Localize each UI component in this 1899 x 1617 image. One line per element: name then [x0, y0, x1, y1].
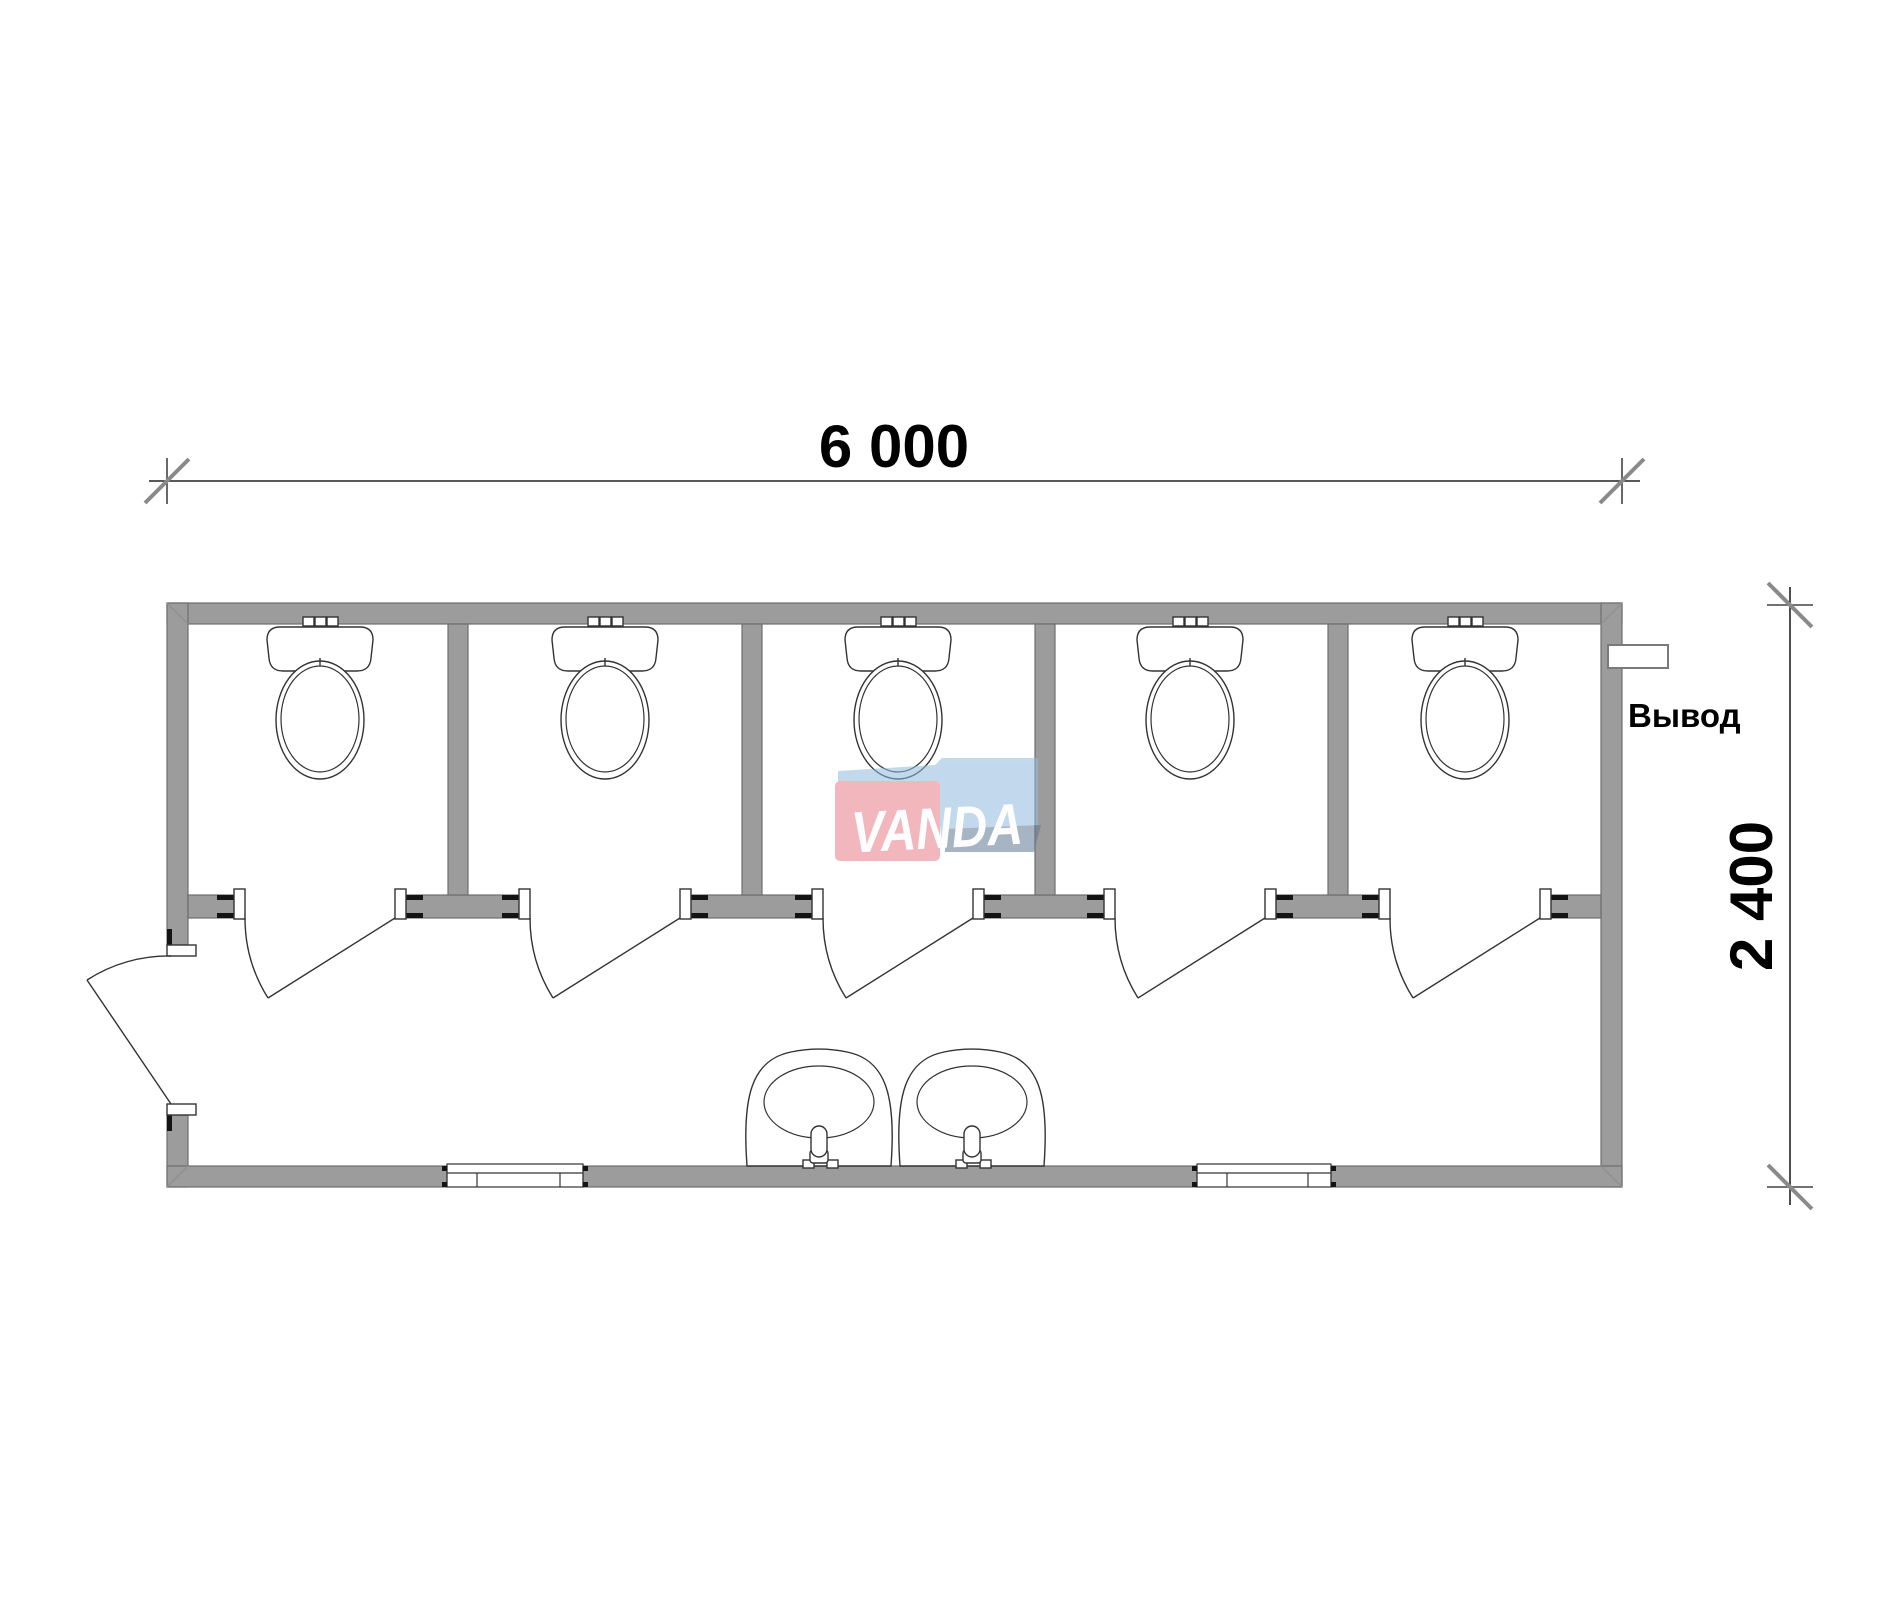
- wall-end-cap: [1192, 1166, 1197, 1171]
- partition-wall: [448, 624, 468, 895]
- toilet-icon: [267, 617, 373, 779]
- sink-icon: [746, 1049, 893, 1168]
- canvas: 6 000 2 400: [0, 0, 1899, 1617]
- watermark-text: VANDA: [850, 792, 1025, 866]
- partition-wall: [1328, 624, 1348, 895]
- toilet-icon: [552, 617, 658, 779]
- wall-end-cap: [583, 1166, 588, 1171]
- stall-door: [795, 888, 1001, 998]
- wall-end-cap: [1331, 1182, 1336, 1187]
- window: [442, 1164, 588, 1187]
- window: [1192, 1164, 1336, 1187]
- stall-door: [502, 888, 708, 998]
- wall-end-cap: [442, 1182, 447, 1187]
- stall-door: [217, 888, 423, 998]
- width-dimension-label: 6 000: [819, 413, 969, 480]
- entry-door: [87, 929, 196, 1131]
- toilet-icon: [845, 617, 951, 779]
- wall-end-cap: [583, 1182, 588, 1187]
- wall-end-cap: [442, 1166, 447, 1171]
- sink-icon: [899, 1049, 1046, 1168]
- outlet-pipe-icon: [1608, 645, 1668, 668]
- height-dimension-label: 2 400: [1718, 821, 1785, 971]
- toilet-icon: [1412, 617, 1518, 779]
- utility-outlet: Вывод: [1608, 645, 1741, 734]
- vanda-watermark: VANDA: [835, 758, 1041, 865]
- window-frame: [447, 1164, 583, 1187]
- wall-end-cap: [1331, 1166, 1336, 1171]
- wall-end-cap: [1192, 1182, 1197, 1187]
- partition-wall: [742, 624, 762, 895]
- window-frame: [1197, 1164, 1331, 1187]
- horizontal-dimension: 6 000: [145, 413, 1644, 504]
- toilet-icon: [1137, 617, 1243, 779]
- stall-door: [1362, 888, 1568, 998]
- floor-plan-drawing: 6 000 2 400: [0, 0, 1899, 1617]
- stall-door: [1087, 888, 1293, 998]
- vertical-dimension: 2 400: [1718, 583, 1813, 1209]
- outlet-label: Вывод: [1628, 697, 1741, 734]
